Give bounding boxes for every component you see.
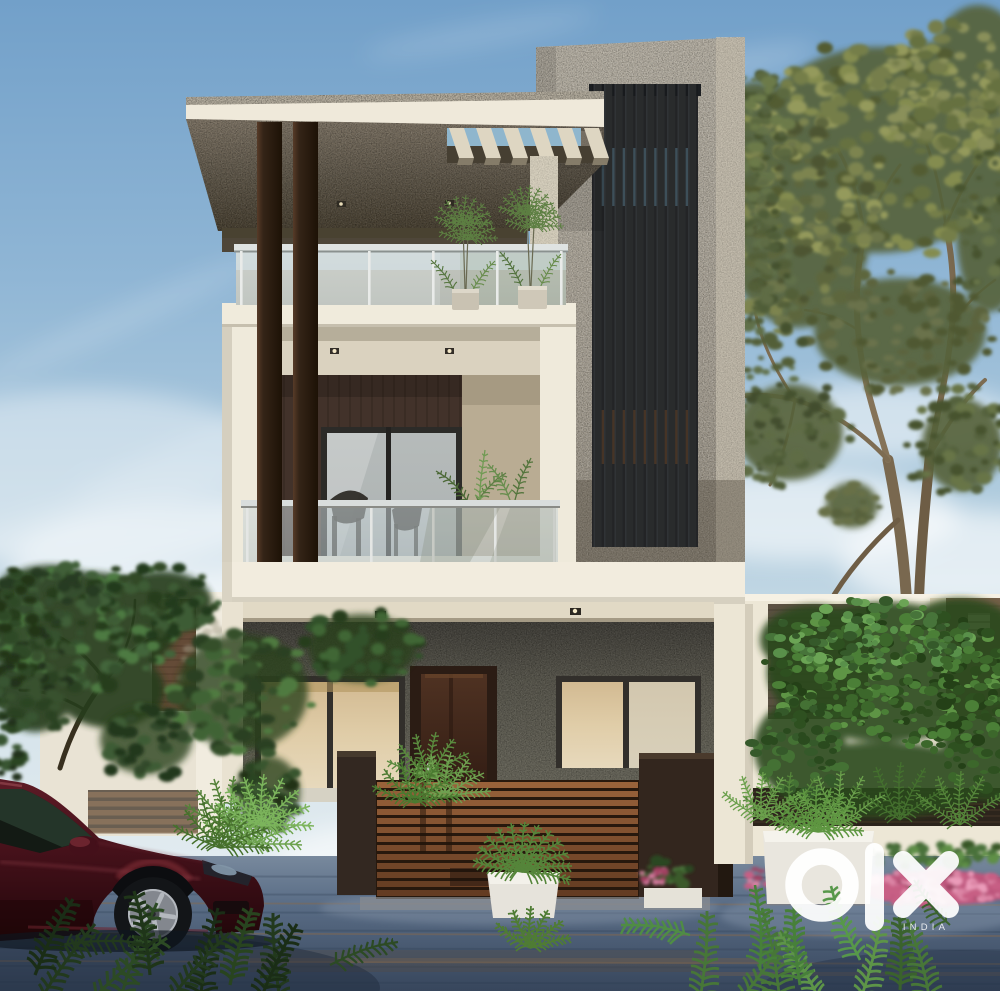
svg-text:INDIA: INDIA: [903, 922, 949, 933]
